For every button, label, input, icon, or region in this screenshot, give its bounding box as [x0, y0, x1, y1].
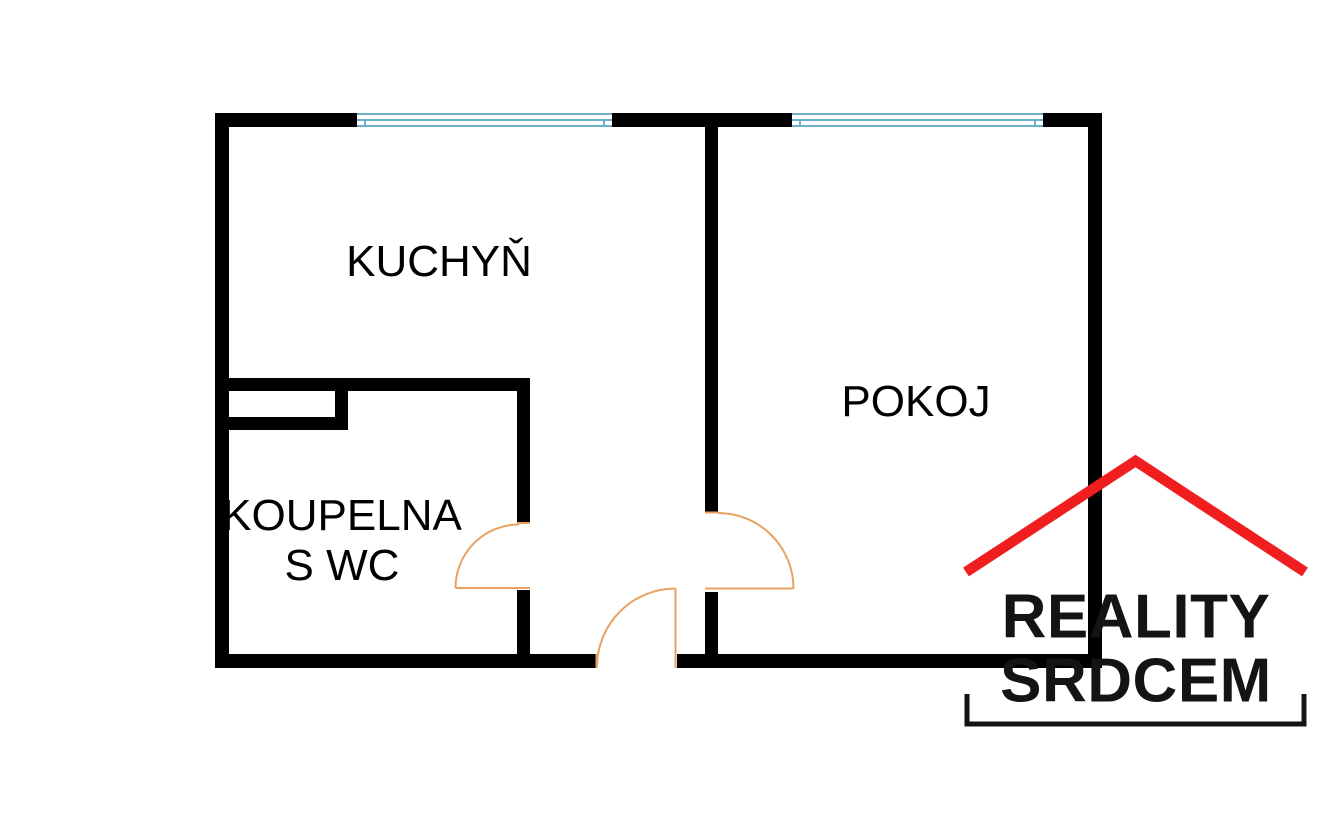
- logo-text-line1: REALITY: [1002, 582, 1271, 653]
- wall-divider-upper: [705, 127, 718, 513]
- wall-bottom-left-segment: [215, 654, 597, 668]
- door-arc-room: [718, 513, 794, 589]
- wall-top-left-segment: [215, 113, 357, 127]
- wall-bathroom-right-upper: [517, 391, 530, 523]
- room-label-bathroom: KOUPELNA S WC: [222, 491, 462, 591]
- room-label-kitchen: KUCHYŇ: [346, 237, 532, 287]
- wall-top-middle-segment: [612, 113, 792, 127]
- door-arc-entrance: [597, 589, 676, 668]
- window-tick: [364, 119, 366, 127]
- window-tick: [1034, 119, 1036, 127]
- door-arc-bathroom: [456, 525, 520, 589]
- room-label-bathroom-line2: S WC: [222, 541, 462, 591]
- room-label-room: POKOJ: [841, 377, 990, 427]
- wall-shaft-right: [335, 391, 348, 430]
- wall-shaft-bottom: [229, 417, 348, 430]
- window-line: [357, 125, 612, 127]
- window-line: [792, 113, 1043, 115]
- window-tick: [799, 119, 801, 127]
- logo-text-line2: SRDCEM: [1000, 646, 1272, 717]
- window-room: [792, 113, 1043, 127]
- window-kitchen: [357, 113, 612, 127]
- window-line: [357, 119, 612, 121]
- room-label-bathroom-line1: KOUPELNA: [222, 491, 462, 541]
- wall-bathroom-right-lower: [517, 590, 530, 654]
- wall-divider-lower: [705, 592, 718, 654]
- window-line: [357, 113, 612, 115]
- window-line: [792, 119, 1043, 121]
- window-line: [792, 125, 1043, 127]
- floorplan-canvas: KUCHYŇ POKOJ KOUPELNA S WC REALITY SRDCE…: [0, 0, 1337, 820]
- roof-icon: [966, 461, 1305, 572]
- window-tick: [603, 119, 605, 127]
- wall-bathroom-top: [229, 378, 530, 391]
